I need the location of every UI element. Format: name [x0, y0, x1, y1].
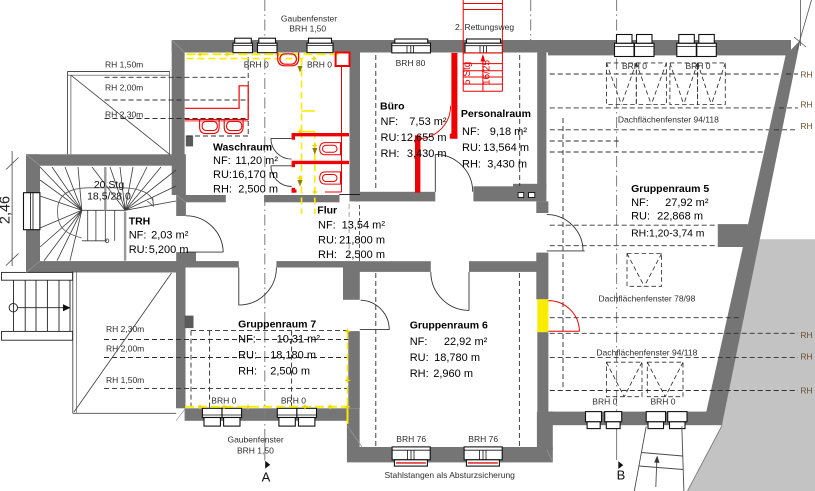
svg-text:RH 2,30m: RH 2,30m	[105, 109, 143, 119]
svg-text:NF:: NF:	[410, 336, 428, 348]
svg-text:21,800 m: 21,800 m	[339, 235, 385, 247]
svg-text:22,92 m²: 22,92 m²	[444, 336, 488, 348]
svg-text:NF:: NF:	[462, 126, 480, 138]
svg-text:B: B	[617, 467, 626, 482]
svg-text:RH :: RH :	[800, 330, 815, 340]
svg-text:RU:: RU:	[381, 132, 400, 144]
svg-text:Dachflächenfenster 78/98: Dachflächenfenster 78/98	[599, 294, 696, 304]
svg-text:BRH 1,50: BRH 1,50	[237, 446, 274, 456]
svg-text:27,92 m²: 27,92 m²	[665, 197, 709, 209]
svg-text:RH:: RH:	[238, 366, 257, 378]
svg-text:Gruppenraum 7: Gruppenraum 7	[238, 319, 316, 331]
svg-text:RH :: RH :	[800, 121, 815, 131]
svg-text:NF:: NF:	[129, 230, 147, 242]
svg-text:BRH 0: BRH 0	[307, 60, 332, 70]
svg-text:BRH 76: BRH 76	[468, 434, 498, 444]
svg-text:16,170 m: 16,170 m	[232, 169, 278, 181]
svg-text:Büro: Büro	[380, 101, 405, 113]
svg-text:3,430 m: 3,430 m	[487, 158, 527, 170]
svg-text:BRH 0: BRH 0	[211, 396, 236, 406]
svg-text:Gruppenraum 5: Gruppenraum 5	[631, 183, 709, 195]
svg-text:2,960 m: 2,960 m	[433, 368, 473, 380]
svg-text:RH 1,50m: RH 1,50m	[106, 375, 144, 385]
svg-text:18,780 m: 18,780 m	[434, 352, 480, 364]
svg-text:10,31 m²: 10,31 m²	[277, 334, 321, 346]
svg-text:BRH 0: BRH 0	[622, 61, 647, 71]
svg-text:Waschraum: Waschraum	[213, 142, 272, 154]
svg-text:BRH 0: BRH 0	[686, 61, 711, 71]
svg-text:16/25: 16/25	[482, 60, 493, 85]
svg-text:Dachflächenfenster 94/118: Dachflächenfenster 94/118	[596, 348, 697, 358]
svg-text:Gaubenfenster: Gaubenfenster	[227, 435, 283, 445]
svg-text:2,03 m²: 2,03 m²	[151, 230, 189, 242]
svg-text:RU:: RU:	[318, 235, 337, 247]
svg-text:BRH 0: BRH 0	[592, 397, 617, 407]
svg-text:RU:: RU:	[410, 352, 429, 364]
svg-text:22,868 m: 22,868 m	[657, 211, 703, 223]
svg-text:RH:: RH:	[318, 249, 337, 261]
svg-text:12,655 m: 12,655 m	[401, 132, 447, 144]
svg-text:RH:: RH:	[462, 158, 481, 170]
svg-text:A: A	[262, 470, 271, 485]
svg-text:TRH: TRH	[129, 216, 151, 228]
svg-text:RH :: RH :	[800, 352, 815, 362]
svg-text:NF:: NF:	[238, 334, 256, 346]
svg-text:5,200 m: 5,200 m	[149, 244, 189, 256]
svg-text:NF:: NF:	[213, 155, 231, 167]
svg-text:3,430 m: 3,430 m	[407, 148, 447, 160]
svg-text:BRH 0: BRH 0	[281, 396, 306, 406]
svg-text:13,564 m: 13,564 m	[483, 142, 529, 154]
svg-text:BRH 0: BRH 0	[651, 397, 676, 407]
svg-text:RH 2,30m: RH 2,30m	[106, 324, 144, 334]
svg-text:RH :: RH :	[800, 99, 815, 109]
svg-text:RH:1,20-3,74 m: RH:1,20-3,74 m	[631, 228, 704, 239]
svg-text:RH:: RH:	[381, 148, 400, 160]
svg-text:RH :: RH :	[800, 386, 815, 396]
svg-text:Personalraum: Personalraum	[461, 108, 531, 120]
svg-text:RH :: RH :	[800, 70, 815, 80]
svg-text:2,500 m: 2,500 m	[345, 249, 385, 261]
svg-text:Gruppenraum 6: Gruppenraum 6	[410, 320, 488, 332]
svg-text:NF:: NF:	[318, 220, 336, 232]
svg-text:RH 2,00m: RH 2,00m	[106, 344, 144, 354]
svg-text:Flur: Flur	[317, 205, 337, 217]
svg-text:BRH 0: BRH 0	[244, 60, 269, 70]
svg-text:RH 2,00m: RH 2,00m	[105, 83, 143, 93]
svg-text:NF:: NF:	[631, 197, 649, 209]
svg-text:20 Stg: 20 Stg	[94, 179, 125, 191]
svg-text:2,500 m: 2,500 m	[238, 183, 278, 195]
svg-text:2,500 m: 2,500 m	[270, 366, 310, 378]
svg-text:Dachflächenfenster 94/118: Dachflächenfenster 94/118	[618, 115, 719, 125]
svg-text:RU:: RU:	[213, 169, 232, 181]
svg-text:RH:: RH:	[213, 183, 232, 195]
svg-text:RU:: RU:	[631, 211, 650, 223]
svg-text:13,54 m²: 13,54 m²	[342, 220, 386, 232]
svg-text:Gaubenfenster: Gaubenfenster	[281, 13, 337, 23]
svg-text:NF:: NF:	[381, 116, 399, 128]
svg-text:RU:: RU:	[462, 142, 481, 154]
svg-text:9,18 m²: 9,18 m²	[490, 126, 528, 138]
svg-text:BRH 80: BRH 80	[396, 58, 426, 68]
svg-text:BRH 1,50: BRH 1,50	[289, 23, 326, 33]
svg-text:7,53 m²: 7,53 m²	[409, 116, 447, 128]
svg-text:RU:: RU:	[238, 350, 257, 362]
svg-text:RH:: RH:	[410, 368, 429, 380]
svg-text:BRH 76: BRH 76	[396, 434, 426, 444]
svg-text:18,180 m: 18,180 m	[270, 350, 316, 362]
svg-text:2. Rettungsweg: 2. Rettungsweg	[455, 22, 514, 32]
svg-text:5 Stg: 5 Stg	[462, 62, 473, 85]
svg-text:11,20 m²: 11,20 m²	[235, 155, 278, 167]
svg-text:Stahlstangen als Absturzsicher: Stahlstangen als Absturzsicherung	[385, 470, 516, 480]
svg-text:RH 1,50m: RH 1,50m	[105, 60, 143, 70]
svg-text:2,46: 2,46	[0, 196, 14, 224]
svg-text:18,5/28,0: 18,5/28,0	[87, 191, 131, 203]
svg-text:RU:: RU:	[129, 244, 148, 256]
